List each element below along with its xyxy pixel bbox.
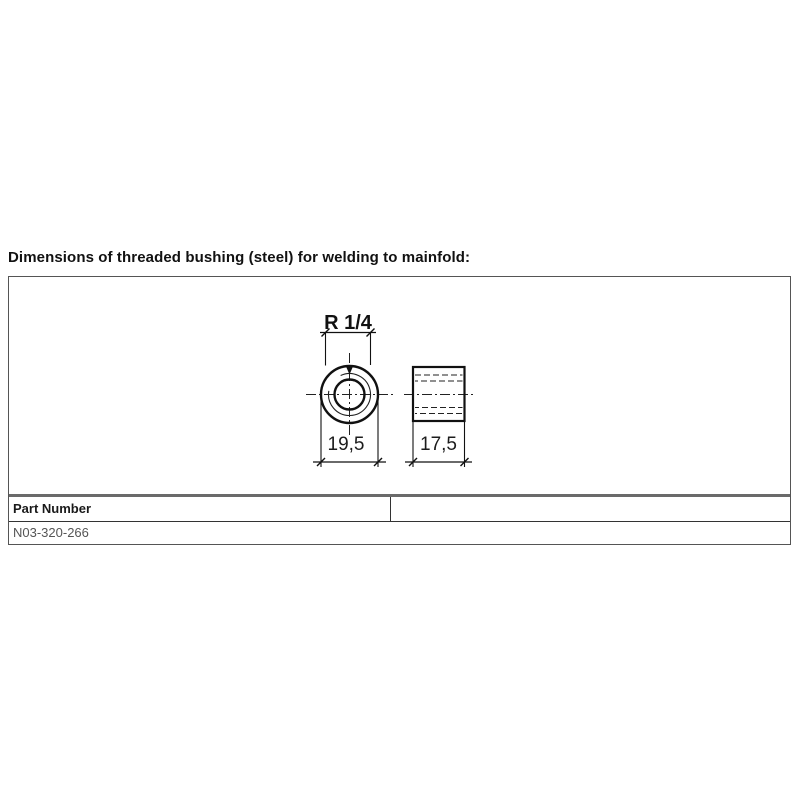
document-page: Dimensions of threaded bushing (steel) f…	[0, 0, 800, 800]
side-view	[404, 367, 476, 421]
page-title: Dimensions of threaded bushing (steel) f…	[8, 249, 470, 266]
thread-dimension: R 1/4	[320, 312, 376, 366]
front-view	[306, 353, 394, 435]
front-diameter-dimension: 19,5	[328, 434, 365, 455]
figure-frame: R 1/4 19,5	[8, 276, 791, 545]
part-number-header: Part Number	[13, 497, 91, 521]
table-row: N03-320-266	[9, 522, 790, 544]
table-column-divider	[390, 497, 391, 521]
technical-drawing: R 1/4 19,5	[9, 277, 790, 495]
part-number-value: N03-320-266	[13, 522, 89, 544]
thread-size-label: R 1/4	[324, 312, 373, 334]
side-width-dimension: 17,5	[420, 434, 457, 455]
width-dimension: 17,5	[405, 421, 472, 467]
table-header-row: Part Number	[9, 497, 790, 521]
